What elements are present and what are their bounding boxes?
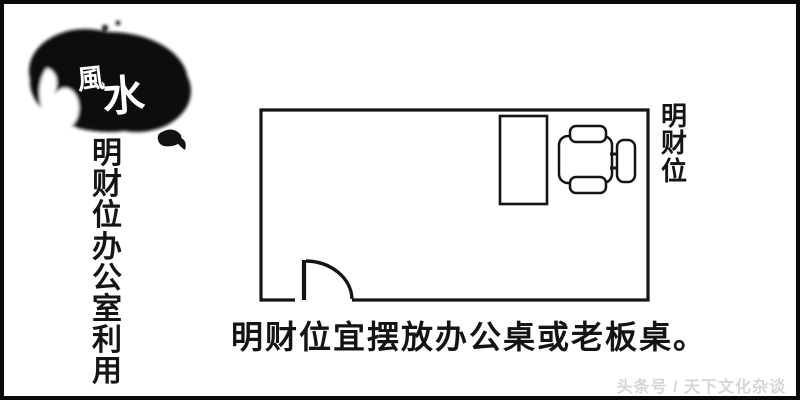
office-chair <box>559 126 635 193</box>
office-floor-plan <box>250 99 670 311</box>
page-title-vertical: 明财位办公室利用 <box>89 138 125 388</box>
fish-icon <box>158 129 186 150</box>
chair-armrest-top <box>570 126 606 142</box>
caption-text: 明财位宜摆放办公桌或老板桌。 <box>231 312 751 358</box>
logo-char-shui: 水 <box>101 70 147 122</box>
wealth-position-label: 明财位 <box>659 103 689 185</box>
door-swing-arc <box>306 261 352 299</box>
feng-shui-illustration: 風 水 明财位办公室利用 明财位 明财位宜摆放办公桌或老板桌。 头条号 / <box>0 0 800 400</box>
office-desk <box>500 116 547 204</box>
watermark-text: 头条号 / 天下文化杂谈 <box>617 373 786 397</box>
ink-dot <box>102 25 108 31</box>
ink-dot <box>116 21 121 26</box>
chair-armrest-bottom <box>570 177 606 193</box>
chair-backrest <box>617 140 635 182</box>
